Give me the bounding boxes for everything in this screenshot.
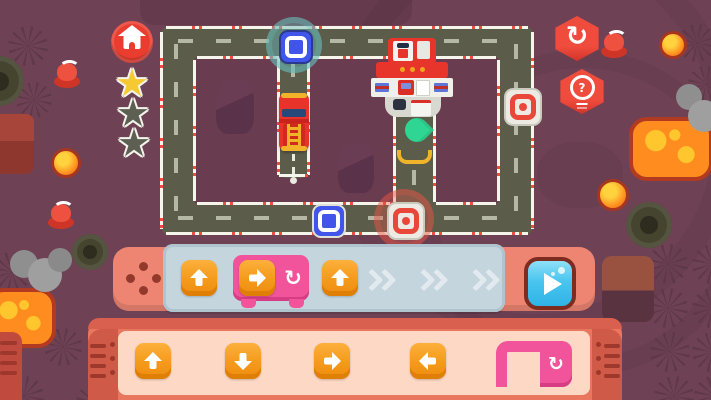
palette-loop-repeat[interactable]: ↻ (540, 341, 572, 387)
station-body (371, 78, 453, 97)
palette-right-grip (592, 329, 622, 400)
background-shadow-blob (140, 0, 412, 25)
starburst-decoration (694, 376, 711, 400)
station-window (375, 83, 389, 92)
starburst-decoration (648, 244, 688, 284)
up-arrow-icon (330, 269, 350, 287)
truck-trail-dot (290, 177, 297, 184)
road-edge (197, 202, 496, 205)
mini-truck-icon (397, 43, 409, 48)
game-stage: ★ ★ ★ ↻ ? ↻ (0, 0, 711, 400)
red-beacon-decoration (601, 30, 627, 58)
dpad-dot (152, 274, 161, 283)
machine-edge-decoration (0, 332, 22, 400)
ambulance (411, 100, 431, 116)
rock-decoration (338, 143, 374, 193)
palette-command-move-right[interactable] (314, 343, 350, 379)
smoke-decoration (48, 248, 72, 272)
fire-station (371, 36, 453, 148)
program-command-move-up[interactable] (322, 260, 358, 296)
station-roof-panel (393, 41, 413, 61)
station-window (434, 83, 448, 92)
station-apron (385, 97, 441, 117)
station-roof (388, 38, 436, 64)
waypoint-blue-bottom (312, 204, 346, 238)
station-roof-panel (417, 41, 430, 59)
lava-ball-decoration (597, 179, 629, 211)
road-edge (497, 60, 500, 201)
star-empty: ★ (115, 127, 153, 159)
lava-ball-decoration (51, 148, 81, 178)
red-beacon-decoration (48, 201, 74, 229)
right-arrow-icon (248, 268, 266, 288)
rock-decoration (216, 80, 254, 134)
red-beacon-decoration (54, 60, 80, 88)
up-arrow-icon (189, 269, 209, 287)
palette-panel-lip (88, 318, 622, 329)
dpad-dot (139, 286, 148, 295)
lane-marking (174, 44, 178, 216)
palette-command-move-left[interactable] (410, 343, 446, 379)
down-arrow-icon (233, 352, 253, 370)
lightbulb-icon: ? (570, 75, 595, 100)
station-door-red (398, 80, 414, 95)
restart-icon: ↻ (566, 21, 589, 52)
truck-trail-marking (292, 154, 295, 174)
tire-decoration (626, 202, 672, 248)
parked-car (393, 99, 406, 110)
starburst-decoration (650, 332, 690, 372)
station-light (410, 67, 415, 72)
lane-marking (514, 44, 518, 216)
road-edge (531, 32, 534, 229)
station-band (376, 62, 448, 78)
road-circuit (160, 26, 534, 235)
road-edge (166, 232, 528, 235)
waypoint-blue-top (279, 30, 313, 64)
road-edge (193, 60, 196, 201)
dpad-dot (126, 274, 135, 283)
station-light (420, 67, 425, 72)
tire-decoration (72, 234, 108, 270)
waypoint-red-junction (387, 202, 425, 240)
palette-command-move-up[interactable] (135, 343, 171, 379)
loop-repeat-icon: ↻ (278, 259, 308, 297)
mini-truck-icon (398, 49, 408, 58)
truck-windshield (282, 109, 306, 117)
loop-foot (241, 299, 256, 308)
program-command-move-up[interactable] (181, 260, 217, 296)
program-command-move-right[interactable] (239, 260, 275, 296)
home-button[interactable] (111, 21, 153, 63)
road-edge (166, 26, 528, 29)
starburst-decoration (692, 332, 711, 372)
waypoint-red-right (504, 88, 542, 126)
palette-command-move-down[interactable] (225, 343, 261, 379)
road-edge (160, 32, 163, 229)
crate-decoration (0, 114, 34, 174)
starburst-decoration (654, 376, 694, 400)
loop-repeat-icon: ↻ (548, 353, 564, 375)
up-arrow-icon (143, 352, 163, 370)
fire-truck (279, 93, 309, 151)
lane-marking (178, 39, 518, 43)
lane-marking (178, 216, 518, 220)
station-light (400, 67, 405, 72)
dpad-dot (139, 262, 148, 271)
home-icon (120, 35, 144, 55)
loop-foot (289, 299, 304, 308)
parking-bracket-marking (397, 150, 432, 164)
station-garage-door (416, 80, 430, 96)
destination-pin (400, 113, 434, 147)
palette-command-loop[interactable] (496, 341, 540, 387)
left-arrow-icon (419, 351, 437, 371)
play-button[interactable] (524, 257, 576, 310)
crate-decoration (602, 256, 654, 322)
starburst-decoration (648, 288, 688, 328)
lava-ball-decoration (659, 31, 687, 59)
right-arrow-icon (323, 351, 341, 371)
palette-left-grip (88, 329, 118, 400)
